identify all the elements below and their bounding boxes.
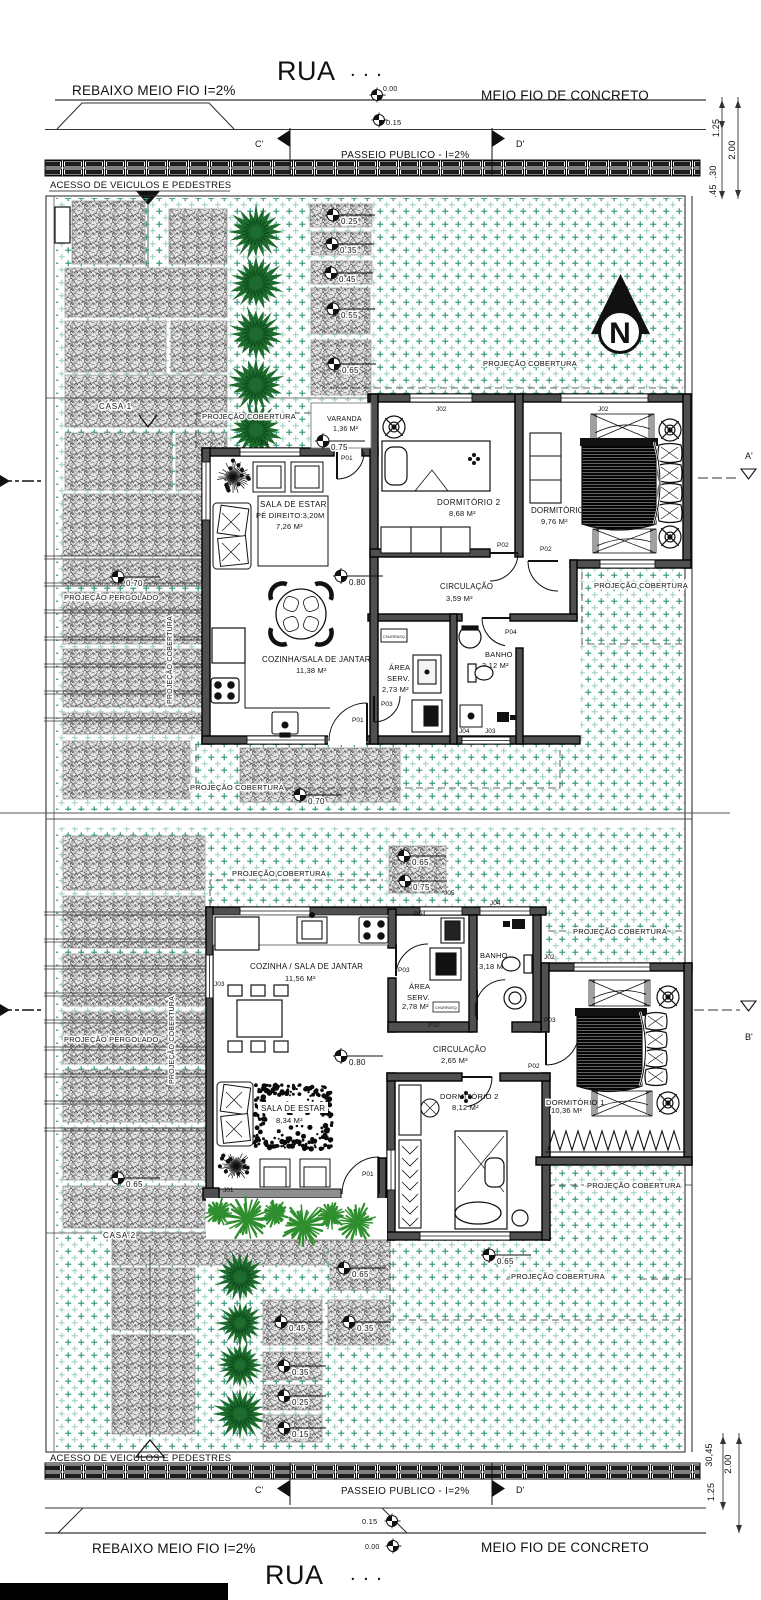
svg-text:.45: .45 (708, 184, 718, 197)
svg-text:SERV.: SERV. (407, 993, 430, 1002)
svg-text:CHURRASQ.: CHURRASQ. (435, 1006, 458, 1010)
svg-text:C': C' (255, 139, 263, 149)
svg-text:PROJEÇÃO COBERTURA: PROJEÇÃO COBERTURA (594, 581, 688, 590)
svg-text:0.65: 0.65 (126, 1180, 143, 1189)
svg-text:0.65: 0.65 (412, 858, 429, 867)
svg-text:SALA DE ESTAR: SALA DE ESTAR (260, 500, 327, 509)
svg-text:ACESSO DE VEICULOS E PEDESTRES: ACESSO DE VEICULOS E PEDESTRES (50, 1453, 231, 1464)
svg-text:J03: J03 (485, 728, 496, 735)
svg-text:J02: J02 (436, 406, 447, 413)
svg-text:COZINHA/SALA DE JANTAR: COZINHA/SALA DE JANTAR (262, 655, 371, 664)
svg-text:PROJEÇÃO COBERTURA: PROJEÇÃO COBERTURA (511, 1272, 605, 1281)
svg-text:PROJEÇÃO PERGOLADO: PROJEÇÃO PERGOLADO (64, 1035, 158, 1044)
svg-text:P01: P01 (341, 455, 353, 462)
svg-text:PASSEIO PUBLICO - I=2%: PASSEIO PUBLICO - I=2% (341, 1486, 469, 1497)
svg-text:0.80: 0.80 (349, 578, 366, 587)
svg-text:RUA: RUA (277, 56, 336, 86)
svg-text:SERV.: SERV. (387, 674, 410, 683)
svg-text:0.15: 0.15 (362, 1517, 377, 1526)
svg-text:0.35: 0.35 (340, 246, 357, 255)
svg-text:2,65 M²: 2,65 M² (441, 1056, 468, 1065)
svg-text:10,36 M²: 10,36 M² (551, 1106, 582, 1115)
svg-text:COZINHA / SALA DE JANTAR: COZINHA / SALA DE JANTAR (250, 962, 363, 971)
svg-text:0.45: 0.45 (339, 275, 356, 284)
svg-text:1.25: 1.25 (711, 119, 721, 137)
svg-text:0.75: 0.75 (331, 443, 348, 452)
svg-text:0.35: 0.35 (357, 1324, 374, 1333)
svg-text:PROJEÇÃO COBERTURA: PROJEÇÃO COBERTURA (190, 783, 284, 792)
svg-text:PASSEIO PUBLICO - I=2%: PASSEIO PUBLICO - I=2% (341, 150, 469, 161)
svg-text:2,73 M²: 2,73 M² (382, 685, 409, 694)
svg-text:PROJEÇÃO COBERTURA: PROJEÇÃO COBERTURA (232, 869, 326, 878)
svg-text:J02: J02 (598, 406, 609, 413)
svg-text:P01: P01 (352, 717, 364, 724)
svg-text:0.35: 0.35 (292, 1368, 309, 1377)
svg-text:P04: P04 (505, 629, 517, 636)
svg-text:B': B' (745, 1032, 753, 1042)
svg-text:CASA 1: CASA 1 (99, 402, 132, 411)
svg-text:RUA: RUA (265, 1560, 324, 1590)
svg-text:0.65: 0.65 (352, 1270, 369, 1279)
svg-text:J04: J04 (459, 728, 470, 735)
svg-text:11,56 M²: 11,56 M² (285, 974, 316, 983)
svg-text:MEIO FIO DE CONCRETO: MEIO FIO DE CONCRETO (481, 88, 649, 103)
svg-text:8,34 M²: 8,34 M² (276, 1116, 303, 1125)
svg-text:P03: P03 (381, 701, 393, 708)
svg-text:2.00: 2.00 (727, 140, 738, 159)
svg-text:9,76 M²: 9,76 M² (541, 517, 568, 526)
svg-text:MEIO FIO DE CONCRETO: MEIO FIO DE CONCRETO (481, 1540, 649, 1555)
svg-text:P03: P03 (544, 1017, 556, 1024)
svg-text:0.15: 0.15 (386, 118, 401, 127)
svg-text:0.65: 0.65 (342, 366, 359, 375)
svg-text:0.70: 0.70 (308, 797, 325, 806)
svg-text:PROJEÇÃO COBERTURA: PROJEÇÃO COBERTURA (573, 927, 667, 936)
svg-text:0.45: 0.45 (289, 1324, 306, 1333)
svg-text:J04: J04 (490, 900, 501, 907)
svg-text:D': D' (516, 1485, 524, 1495)
svg-text:0.80: 0.80 (349, 1058, 366, 1067)
svg-text:CASA 2: CASA 2 (103, 1231, 136, 1240)
svg-text:PROJEÇÃO COBERTURA: PROJEÇÃO COBERTURA (483, 359, 577, 368)
svg-text:PÉ DIREITO:3,20M: PÉ DIREITO:3,20M (256, 511, 325, 520)
svg-text:J01: J01 (223, 1187, 234, 1194)
svg-text:1.25: 1.25 (706, 1483, 716, 1501)
svg-text:3,59 M²: 3,59 M² (446, 594, 473, 603)
svg-text:P04: P04 (414, 911, 426, 918)
svg-text:DORMITÓRIO 2: DORMITÓRIO 2 (437, 498, 501, 507)
svg-text:J03: J03 (214, 981, 225, 988)
svg-text:0.00: 0.00 (383, 86, 397, 93)
svg-text:REBAIXO MEIO FIO I=2%: REBAIXO MEIO FIO I=2% (72, 83, 236, 98)
svg-text:ÁREA: ÁREA (389, 663, 410, 672)
svg-text:REBAIXO MEIO FIO I=2%: REBAIXO MEIO FIO I=2% (92, 1541, 256, 1556)
svg-text:CIRCULAÇÃO: CIRCULAÇÃO (433, 1045, 486, 1054)
svg-text:BANHO: BANHO (480, 951, 508, 960)
svg-text:PROJEÇÃO PERGOLADO: PROJEÇÃO PERGOLADO (64, 593, 158, 602)
svg-text:2.00: 2.00 (723, 1454, 734, 1473)
svg-text:D': D' (516, 139, 524, 149)
svg-text:0.70: 0.70 (126, 579, 143, 588)
svg-text:8,68 M²: 8,68 M² (449, 509, 476, 518)
svg-text:BANHO: BANHO (485, 650, 513, 659)
svg-text:0.25: 0.25 (341, 217, 358, 226)
svg-text:CHURRASQ.: CHURRASQ. (383, 635, 406, 639)
svg-text:0.65: 0.65 (497, 1257, 514, 1266)
svg-text:P02: P02 (497, 542, 509, 549)
svg-text:0.55: 0.55 (341, 311, 358, 320)
svg-text:0.15: 0.15 (292, 1430, 309, 1439)
svg-text:VARANDA: VARANDA (327, 416, 362, 423)
svg-text:A': A' (745, 451, 753, 461)
svg-text:CIRCULAÇÃO: CIRCULAÇÃO (440, 582, 493, 591)
svg-text:C': C' (255, 1485, 263, 1495)
svg-text:J01: J01 (259, 440, 270, 447)
svg-text:30,45: 30,45 (704, 1443, 714, 1467)
svg-text:PROJEÇÃO COBERTURA: PROJEÇÃO COBERTURA (587, 1181, 681, 1190)
svg-text:J02: J02 (544, 954, 555, 961)
svg-text:P02: P02 (540, 546, 552, 553)
svg-text:PROJEÇÃO COBERTURA: PROJEÇÃO COBERTURA (167, 996, 176, 1084)
svg-text:2,78 M²: 2,78 M² (402, 1002, 429, 1011)
svg-text:.30: .30 (708, 165, 718, 178)
svg-text:ACESSO DE VEICULOS E PEDESTRES: ACESSO DE VEICULOS E PEDESTRES (50, 180, 231, 191)
svg-text:1,36 M²: 1,36 M² (333, 426, 359, 433)
svg-text:N: N (609, 317, 631, 350)
svg-text:11,38 M²: 11,38 M² (296, 666, 327, 675)
svg-text:SALA DE ESTAR: SALA DE ESTAR (261, 1104, 325, 1113)
svg-text:ÁREA: ÁREA (409, 982, 430, 991)
svg-text:. . .: . . . (350, 1563, 383, 1585)
svg-text:P02: P02 (528, 1063, 540, 1070)
svg-text:PROJEÇÃO COBERTURA: PROJEÇÃO COBERTURA (165, 616, 174, 704)
svg-text:0.00: 0.00 (365, 1544, 379, 1551)
svg-text:. . .: . . . (350, 59, 383, 81)
svg-text:P01: P01 (362, 1171, 374, 1178)
svg-text:0.75: 0.75 (413, 883, 430, 892)
svg-text:P02: P02 (428, 1022, 440, 1029)
svg-text:J05: J05 (444, 890, 455, 897)
svg-text:7,26 M²: 7,26 M² (276, 522, 303, 531)
svg-text:PROJEÇÃO COBERTURA: PROJEÇÃO COBERTURA (202, 412, 296, 421)
svg-text:P03: P03 (398, 967, 410, 974)
svg-text:0.25: 0.25 (292, 1398, 309, 1407)
